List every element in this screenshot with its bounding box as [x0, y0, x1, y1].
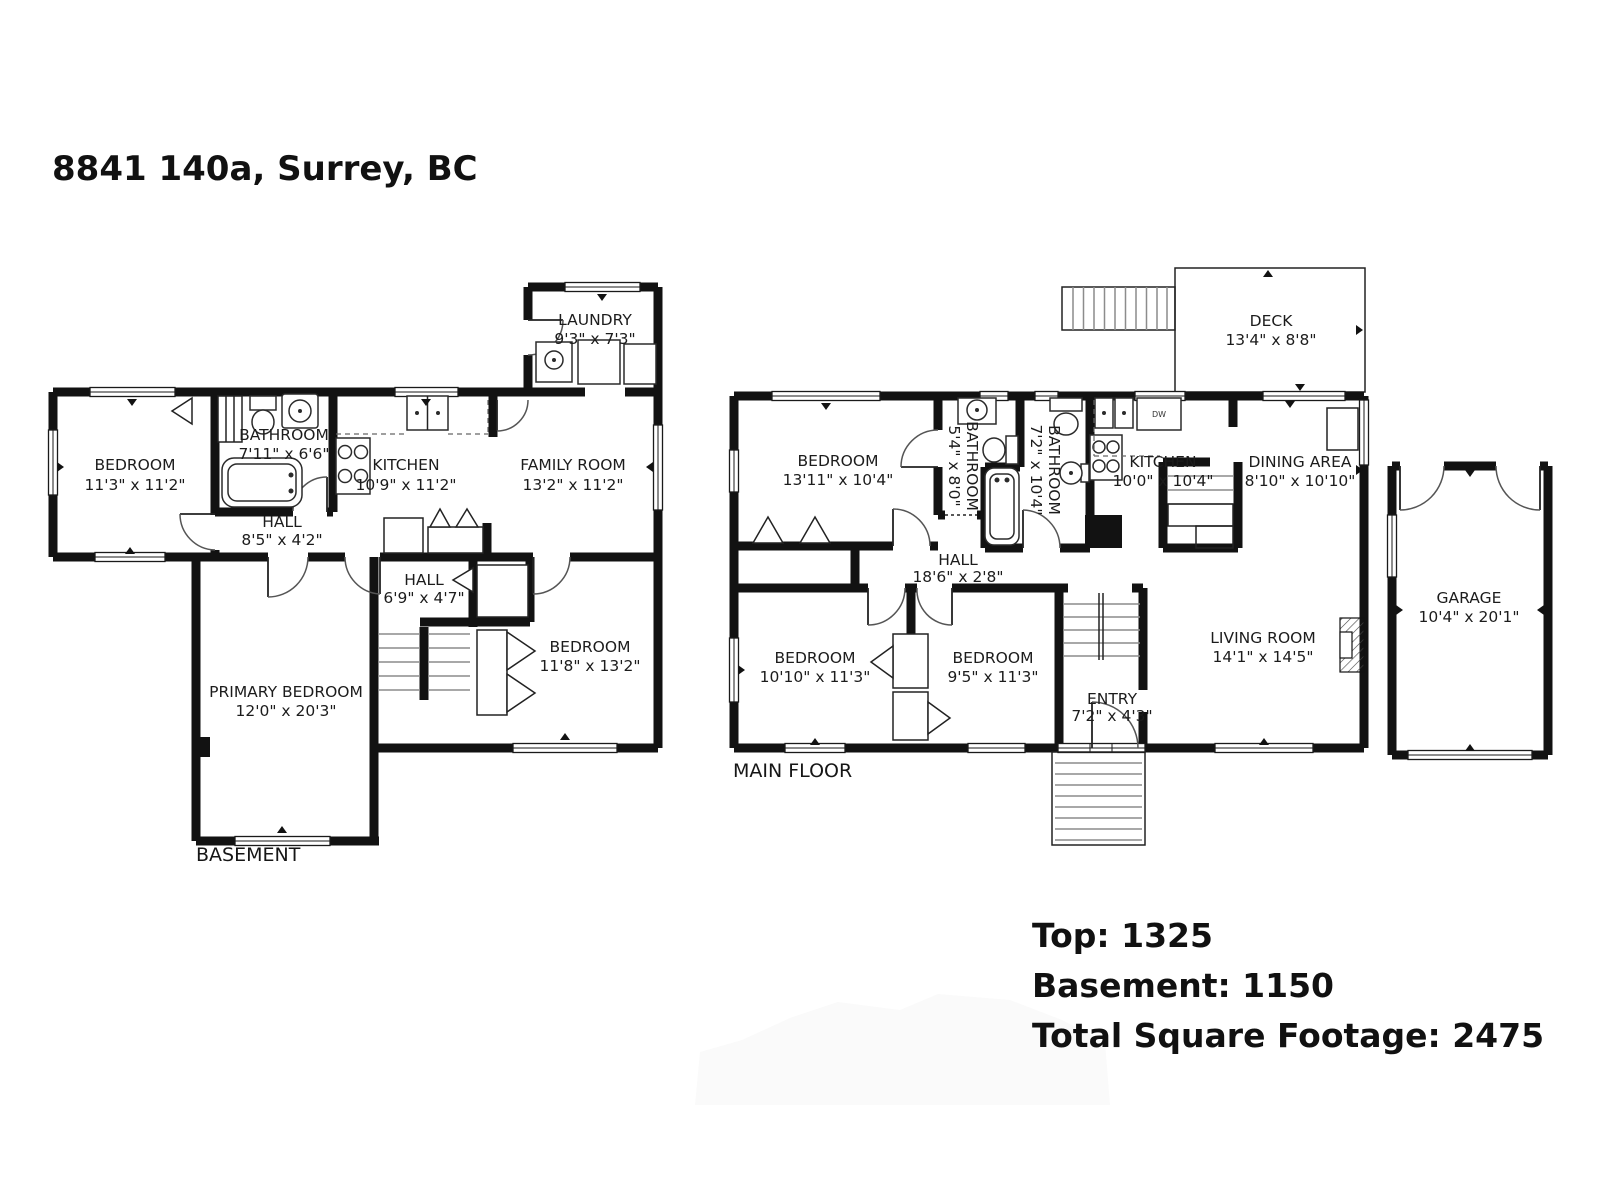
- room-dims: 8'5" x 4'2": [241, 531, 322, 549]
- room-label: DINING AREA: [1249, 453, 1352, 471]
- main-floor-plan: DECK 13'4" x 8'8": [730, 268, 1369, 845]
- room-dims: 10'10" x 11'3": [760, 668, 871, 686]
- room-label: GARAGE: [1437, 589, 1502, 607]
- room-dims: 7'11" x 6'6": [238, 445, 329, 463]
- room-dims: 9'3" x 7'3": [554, 330, 635, 348]
- room-dims: 7'2" x 10'4": [1027, 424, 1045, 515]
- chimney-block: [1085, 515, 1122, 548]
- room-dims: 10'9" x 11'2": [356, 476, 457, 494]
- basement-floor-label: BASEMENT: [196, 844, 301, 866]
- room-label: BEDROOM: [550, 638, 631, 656]
- room-label: BEDROOM: [95, 456, 176, 474]
- room-label: FAMILY ROOM: [520, 456, 626, 474]
- main-floor-label: MAIN FLOOR: [733, 760, 852, 782]
- room-label: BATHROOM: [1045, 425, 1063, 515]
- garage-plan: GARAGE 10'4" x 20'1": [1388, 466, 1549, 760]
- room-dims: 10'0" x 10'4": [1113, 472, 1214, 490]
- room-dims: 11'3" x 11'2": [85, 476, 186, 494]
- room-label: LAUNDRY: [558, 311, 632, 329]
- summary-top: Top: 1325: [1032, 916, 1213, 955]
- deck: DECK 13'4" x 8'8": [1062, 268, 1365, 392]
- room-label: BEDROOM: [798, 452, 879, 470]
- page-title: 8841 140a, Surrey, BC: [52, 149, 478, 189]
- summary-basement: Basement: 1150: [1032, 966, 1334, 1005]
- room-dims: 7'2" x 4'3": [1071, 707, 1152, 725]
- main-interior-stairs: [1063, 593, 1140, 660]
- summary-total: Total Square Footage: 2475: [1032, 1016, 1544, 1055]
- room-dims: 10'4" x 20'1": [1419, 608, 1520, 626]
- room-dims: 13'4" x 8'8": [1225, 331, 1316, 349]
- fireplace: [1340, 618, 1364, 672]
- room-dims: 13'2" x 11'2": [523, 476, 624, 494]
- room-dims: 14'1" x 14'5": [1213, 648, 1314, 666]
- room-label: LIVING ROOM: [1210, 629, 1315, 647]
- room-label: BEDROOM: [953, 649, 1034, 667]
- room-label: BEDROOM: [775, 649, 856, 667]
- entry-door-glyph: [1058, 744, 1145, 753]
- square-footage-summary: Top: 1325 Basement: 1150 Total Square Fo…: [1032, 916, 1544, 1055]
- floorplan-page: 8841 140a, Surrey, BC: [0, 0, 1600, 1200]
- room-label: BATHROOM: [963, 421, 981, 511]
- room-label: DECK: [1250, 312, 1294, 330]
- room-dims: 11'8" x 13'2": [540, 657, 641, 675]
- room-label: HALL: [404, 571, 444, 589]
- room-dims: 9'5" x 11'3": [947, 668, 1038, 686]
- room-label: BATHROOM: [239, 426, 329, 444]
- entry-stoop-stairs: [1052, 752, 1145, 845]
- basement-plan: BEDROOM 11'3" x 11'2" BATHROOM 7'11" x 6…: [49, 283, 663, 867]
- wall-notch: [192, 737, 210, 757]
- room-dims: 5'4" x 8'0": [945, 425, 963, 506]
- room-dims: 6'9" x 4'7": [383, 589, 464, 607]
- room-dims: 13'11" x 10'4": [783, 471, 894, 489]
- dishwasher-label: DW: [1152, 410, 1166, 419]
- room-label: PRIMARY BEDROOM: [209, 683, 363, 701]
- room-label: HALL: [262, 513, 302, 531]
- floorplan-image: 8841 140a, Surrey, BC: [0, 0, 1600, 1200]
- garage-vehicle-door: [1408, 751, 1532, 760]
- room-dims: 8'10" x 10'10": [1245, 472, 1356, 490]
- room-label: ENTRY: [1087, 690, 1138, 708]
- room-dims: 18'6" x 2'8": [912, 568, 1003, 586]
- room-label: KITCHEN: [372, 456, 439, 474]
- room-label: KITCHEN: [1129, 453, 1196, 471]
- room-dims: 12'0" x 20'3": [236, 702, 337, 720]
- room-label: HALL: [938, 551, 978, 569]
